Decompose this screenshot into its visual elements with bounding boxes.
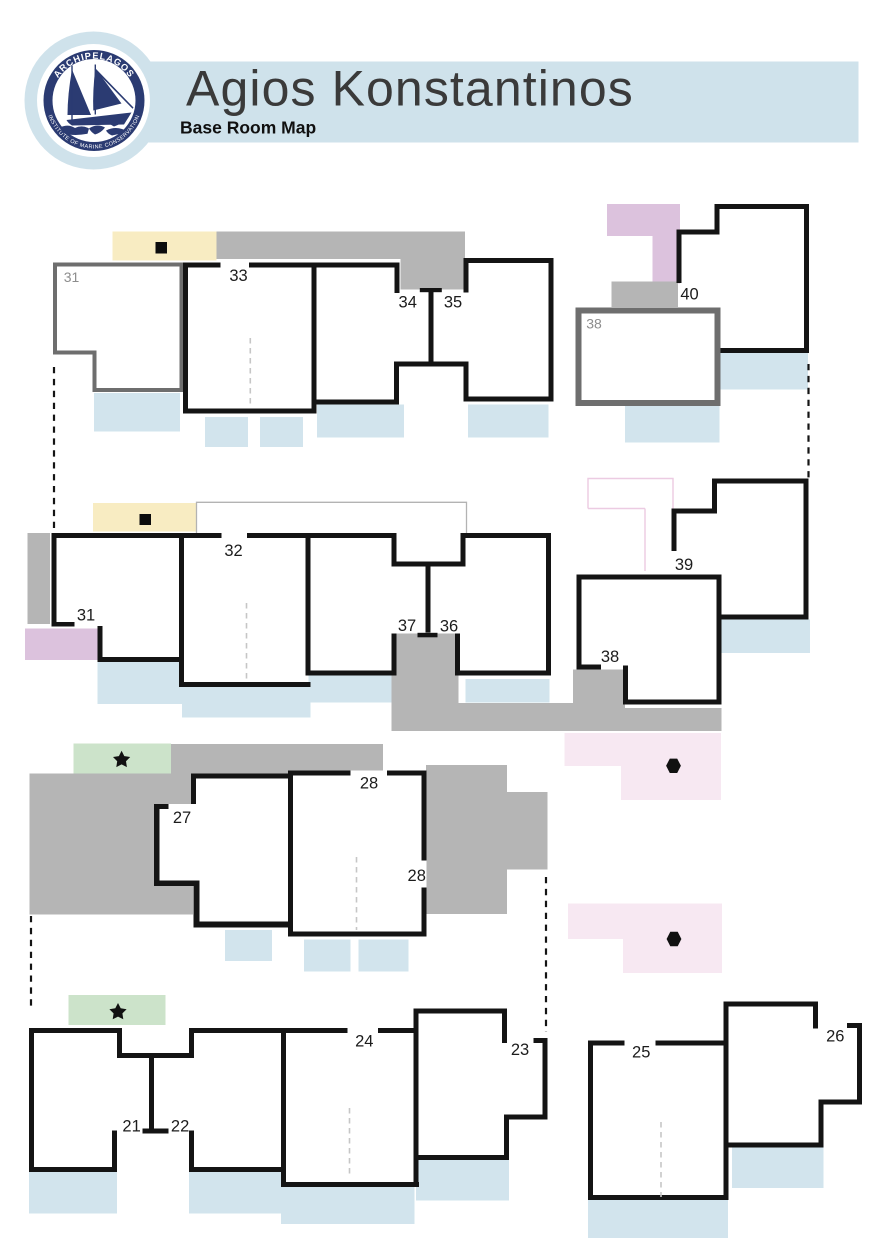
svg-text:35: 35: [444, 294, 462, 312]
svg-text:31: 31: [64, 269, 80, 285]
svg-text:Base Room Map: Base Room Map: [180, 118, 316, 138]
svg-text:28: 28: [360, 775, 378, 793]
svg-text:27: 27: [173, 809, 191, 827]
svg-text:26: 26: [826, 1028, 844, 1046]
svg-text:31: 31: [77, 607, 95, 625]
svg-text:38: 38: [601, 648, 619, 666]
svg-text:37: 37: [398, 617, 416, 635]
svg-text:33: 33: [229, 267, 247, 285]
svg-text:24: 24: [355, 1033, 373, 1051]
svg-text:23: 23: [511, 1041, 529, 1059]
svg-text:34: 34: [399, 294, 417, 312]
svg-text:22: 22: [171, 1118, 189, 1136]
svg-text:40: 40: [680, 286, 698, 304]
svg-text:38: 38: [586, 316, 602, 332]
svg-text:39: 39: [675, 556, 693, 574]
svg-text:25: 25: [632, 1044, 650, 1062]
svg-text:Agios Konstantinos: Agios Konstantinos: [186, 61, 634, 117]
svg-text:36: 36: [440, 618, 458, 636]
svg-text:32: 32: [224, 542, 242, 560]
svg-text:28: 28: [408, 867, 426, 885]
svg-text:21: 21: [122, 1118, 140, 1136]
